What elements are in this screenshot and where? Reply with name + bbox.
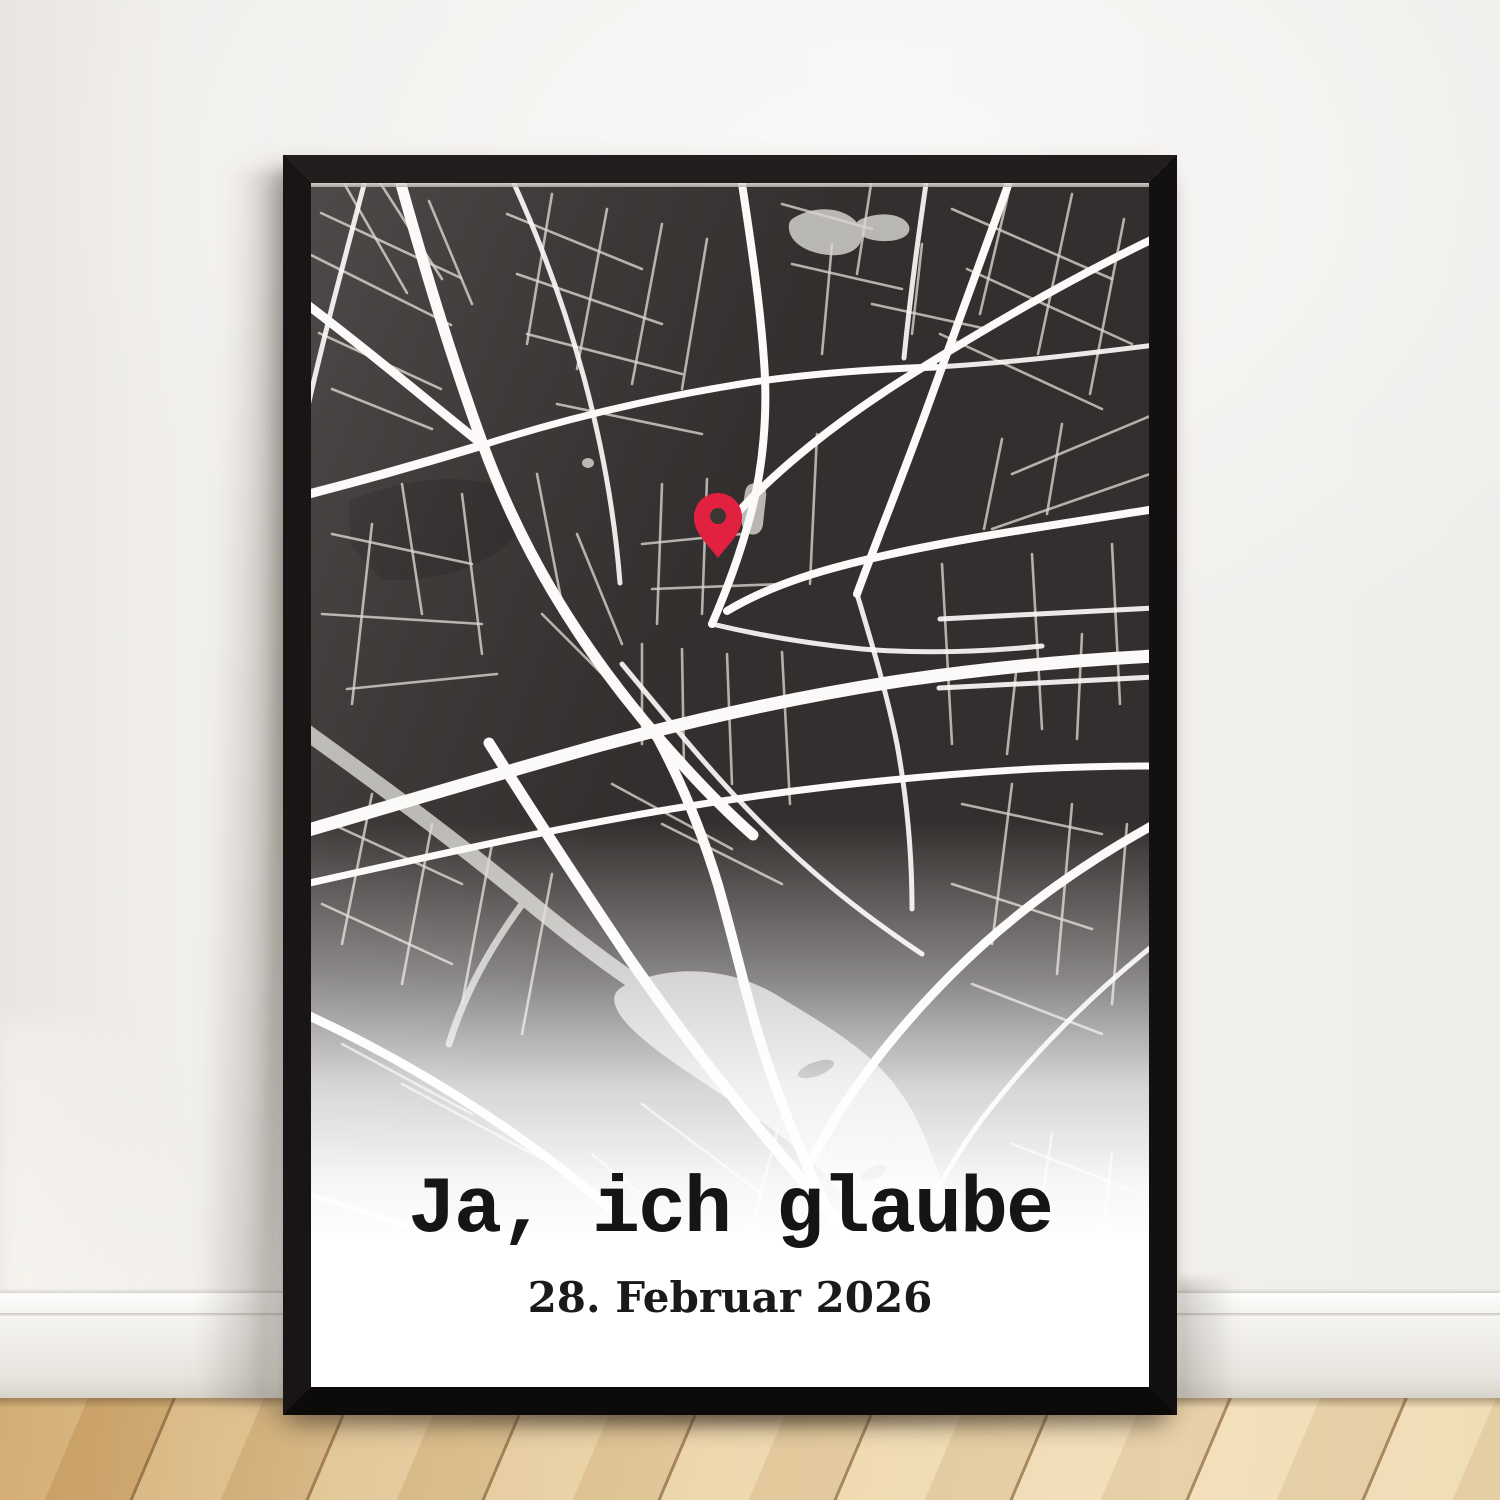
poster-title: Ja, ich glaube bbox=[311, 1171, 1149, 1251]
glass-top-edge bbox=[311, 183, 1149, 187]
room-scene: Ja, ich glaube 28. Februar 2026 bbox=[0, 0, 1500, 1500]
poster-date: 28. Februar 2026 bbox=[311, 1277, 1149, 1319]
poster-text-block: Ja, ich glaube 28. Februar 2026 bbox=[311, 1171, 1149, 1319]
map-poster: Ja, ich glaube 28. Februar 2026 bbox=[311, 183, 1149, 1387]
frame-shadow-on-baseboard bbox=[1177, 1280, 1247, 1402]
picture-frame: Ja, ich glaube 28. Februar 2026 bbox=[283, 155, 1177, 1415]
